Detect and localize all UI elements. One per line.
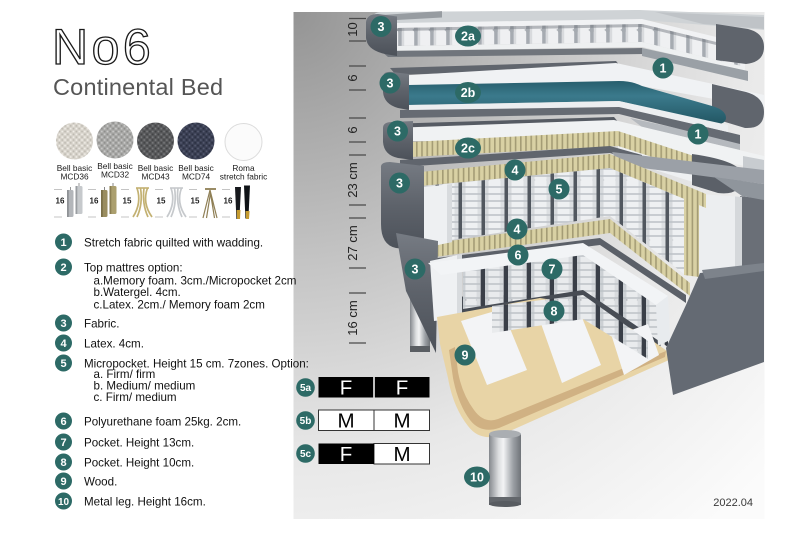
svg-text:Metal leg. Height 16cm.: Metal leg. Height 16cm. (84, 496, 206, 509)
svg-text:4: 4 (512, 164, 519, 178)
svg-text:4: 4 (60, 338, 67, 350)
svg-text:2022.04: 2022.04 (713, 497, 753, 509)
svg-text:2c: 2c (461, 142, 475, 156)
svg-text:2b: 2b (461, 86, 476, 100)
svg-text:3: 3 (387, 77, 394, 91)
svg-text:No6: No6 (52, 19, 154, 75)
svg-text:1: 1 (60, 237, 66, 249)
svg-text:M: M (337, 410, 354, 433)
svg-text:M: M (393, 410, 410, 433)
svg-text:27 cm: 27 cm (345, 225, 360, 260)
svg-text:4: 4 (514, 223, 521, 237)
svg-text:1: 1 (695, 128, 702, 142)
svg-text:2a: 2a (461, 30, 476, 44)
svg-text:6: 6 (60, 416, 66, 428)
svg-text:MCD32: MCD32 (101, 170, 130, 180)
svg-text:9: 9 (462, 349, 469, 363)
svg-text:15: 15 (123, 197, 132, 206)
svg-text:MCD36: MCD36 (60, 172, 89, 182)
svg-text:6: 6 (345, 126, 360, 133)
svg-text:c. Firm/ medium: c. Firm/ medium (94, 391, 177, 404)
svg-text:b.Watergel. 4cm.: b.Watergel. 4cm. (94, 286, 181, 299)
svg-text:Fabric.: Fabric. (84, 318, 119, 331)
svg-text:c.Latex. 2cm./ Memory foam 2cm: c.Latex. 2cm./ Memory foam 2cm (94, 299, 265, 312)
svg-text:8: 8 (60, 457, 66, 469)
svg-text:7: 7 (549, 263, 556, 277)
svg-text:5: 5 (556, 183, 563, 197)
svg-text:Top mattres option:: Top mattres option: (84, 262, 183, 275)
svg-text:Pocket. Height 10cm.: Pocket. Height 10cm. (84, 457, 194, 470)
svg-text:1: 1 (660, 62, 667, 76)
svg-text:MCD74: MCD74 (182, 172, 211, 182)
svg-text:8: 8 (551, 305, 558, 319)
svg-text:3: 3 (412, 263, 419, 277)
svg-text:F: F (340, 377, 353, 400)
svg-text:10: 10 (470, 471, 484, 485)
svg-text:6: 6 (515, 249, 522, 263)
svg-text:16: 16 (224, 197, 233, 206)
svg-text:7: 7 (60, 437, 66, 449)
svg-text:2: 2 (60, 262, 66, 274)
svg-text:Pocket. Height 13cm.: Pocket. Height 13cm. (84, 437, 194, 450)
svg-text:16: 16 (90, 197, 99, 206)
svg-text:MCD43: MCD43 (141, 172, 170, 182)
svg-text:3: 3 (396, 177, 403, 191)
svg-text:6: 6 (345, 74, 360, 81)
svg-text:5b: 5b (300, 416, 312, 427)
svg-text:16 cm: 16 cm (345, 300, 360, 335)
svg-text:Wood.: Wood. (84, 476, 117, 489)
svg-text:9: 9 (60, 476, 66, 488)
svg-text:Latex. 4cm.: Latex. 4cm. (84, 338, 144, 351)
svg-text:Continental Bed: Continental Bed (53, 74, 223, 100)
svg-text:F: F (340, 443, 353, 466)
svg-text:10: 10 (345, 22, 360, 36)
svg-text:15: 15 (157, 197, 166, 206)
svg-text:16: 16 (56, 197, 65, 206)
svg-text:5c: 5c (300, 449, 312, 460)
svg-text:3: 3 (394, 125, 401, 139)
svg-text:3: 3 (60, 318, 66, 330)
svg-text:5: 5 (60, 358, 66, 370)
svg-text:Polyurethane foam 25kg. 2cm.: Polyurethane foam 25kg. 2cm. (84, 416, 241, 429)
svg-text:M: M (393, 443, 410, 466)
svg-text:F: F (396, 377, 409, 400)
svg-text:5a: 5a (300, 383, 312, 394)
svg-text:15: 15 (191, 197, 200, 206)
svg-text:10: 10 (58, 497, 70, 508)
svg-text:Stretch fabric quilted with wa: Stretch fabric quilted with wadding. (84, 237, 263, 250)
svg-text:3: 3 (378, 20, 385, 34)
svg-text:23 cm: 23 cm (345, 162, 360, 197)
svg-text:stretch fabric: stretch fabric (220, 172, 268, 182)
